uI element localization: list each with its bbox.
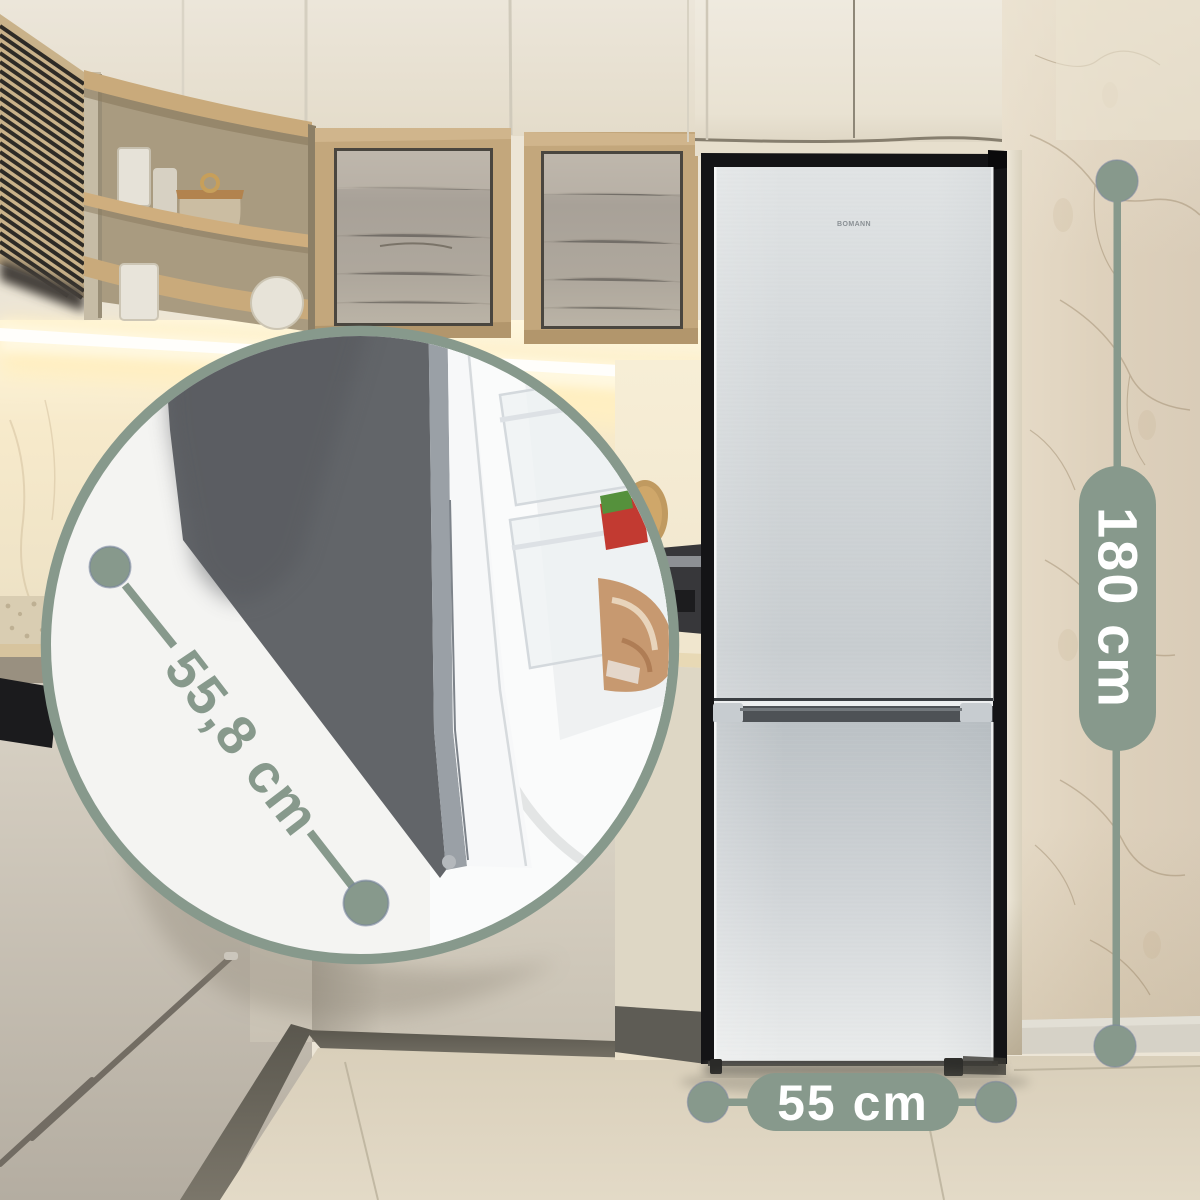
svg-text:BOMANN: BOMANN — [837, 221, 871, 228]
svg-text:180 cm: 180 cm — [1087, 507, 1150, 709]
svg-text:55 cm: 55 cm — [777, 1075, 929, 1131]
